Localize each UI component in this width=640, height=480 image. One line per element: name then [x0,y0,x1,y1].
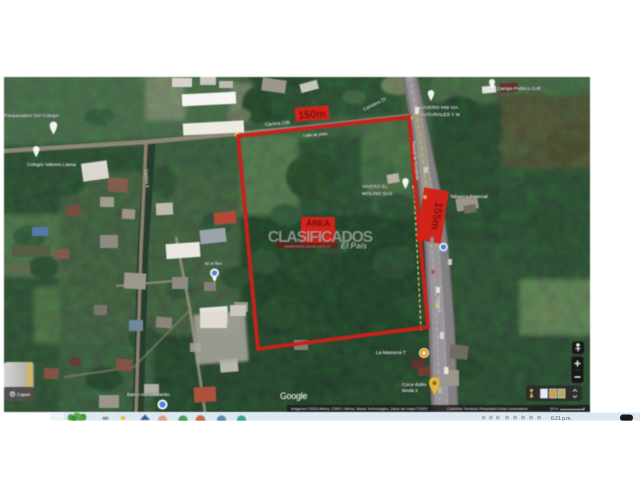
svg-text:NATURALES Y M: NATURALES Y M [421,112,460,118]
svg-text:clasificados.elpais.com.co: clasificados.elpais.com.co [284,244,331,249]
svg-text:Barrio nuevo Llanito: Barrio nuevo Llanito [127,392,170,398]
svg-text:Google: Google [280,391,307,401]
svg-text:Carrera 5: Carrera 5 [144,169,150,188]
svg-text:VIVERO #49 VIA: VIVERO #49 VIA [421,105,459,111]
svg-text:La Mazorca T: La Mazorca T [376,350,406,356]
svg-text:ÁREA: ÁREA [306,218,330,228]
svg-text:Capas: Capas [17,392,31,397]
svg-text:Colegio Valores Llama: Colegio Valores Llama [27,162,76,168]
svg-text:150m: 150m [298,108,326,122]
svg-text:Campo Publico Golf: Campo Publico Golf [497,86,541,92]
svg-text:VIVERO EL: VIVERO EL [362,184,388,190]
svg-text:El País: El País [341,242,368,251]
svg-text:tienda 3: tienda 3 [402,388,418,393]
svg-text:MOLINO SAS: MOLINO SAS [362,191,393,197]
svg-text:Tabanca Especial: Tabanca Especial [450,194,488,200]
svg-text:M el flex: M el flex [205,261,223,266]
svg-text:Parqueadero Del Colegio: Parqueadero Del Colegio [4,113,59,119]
